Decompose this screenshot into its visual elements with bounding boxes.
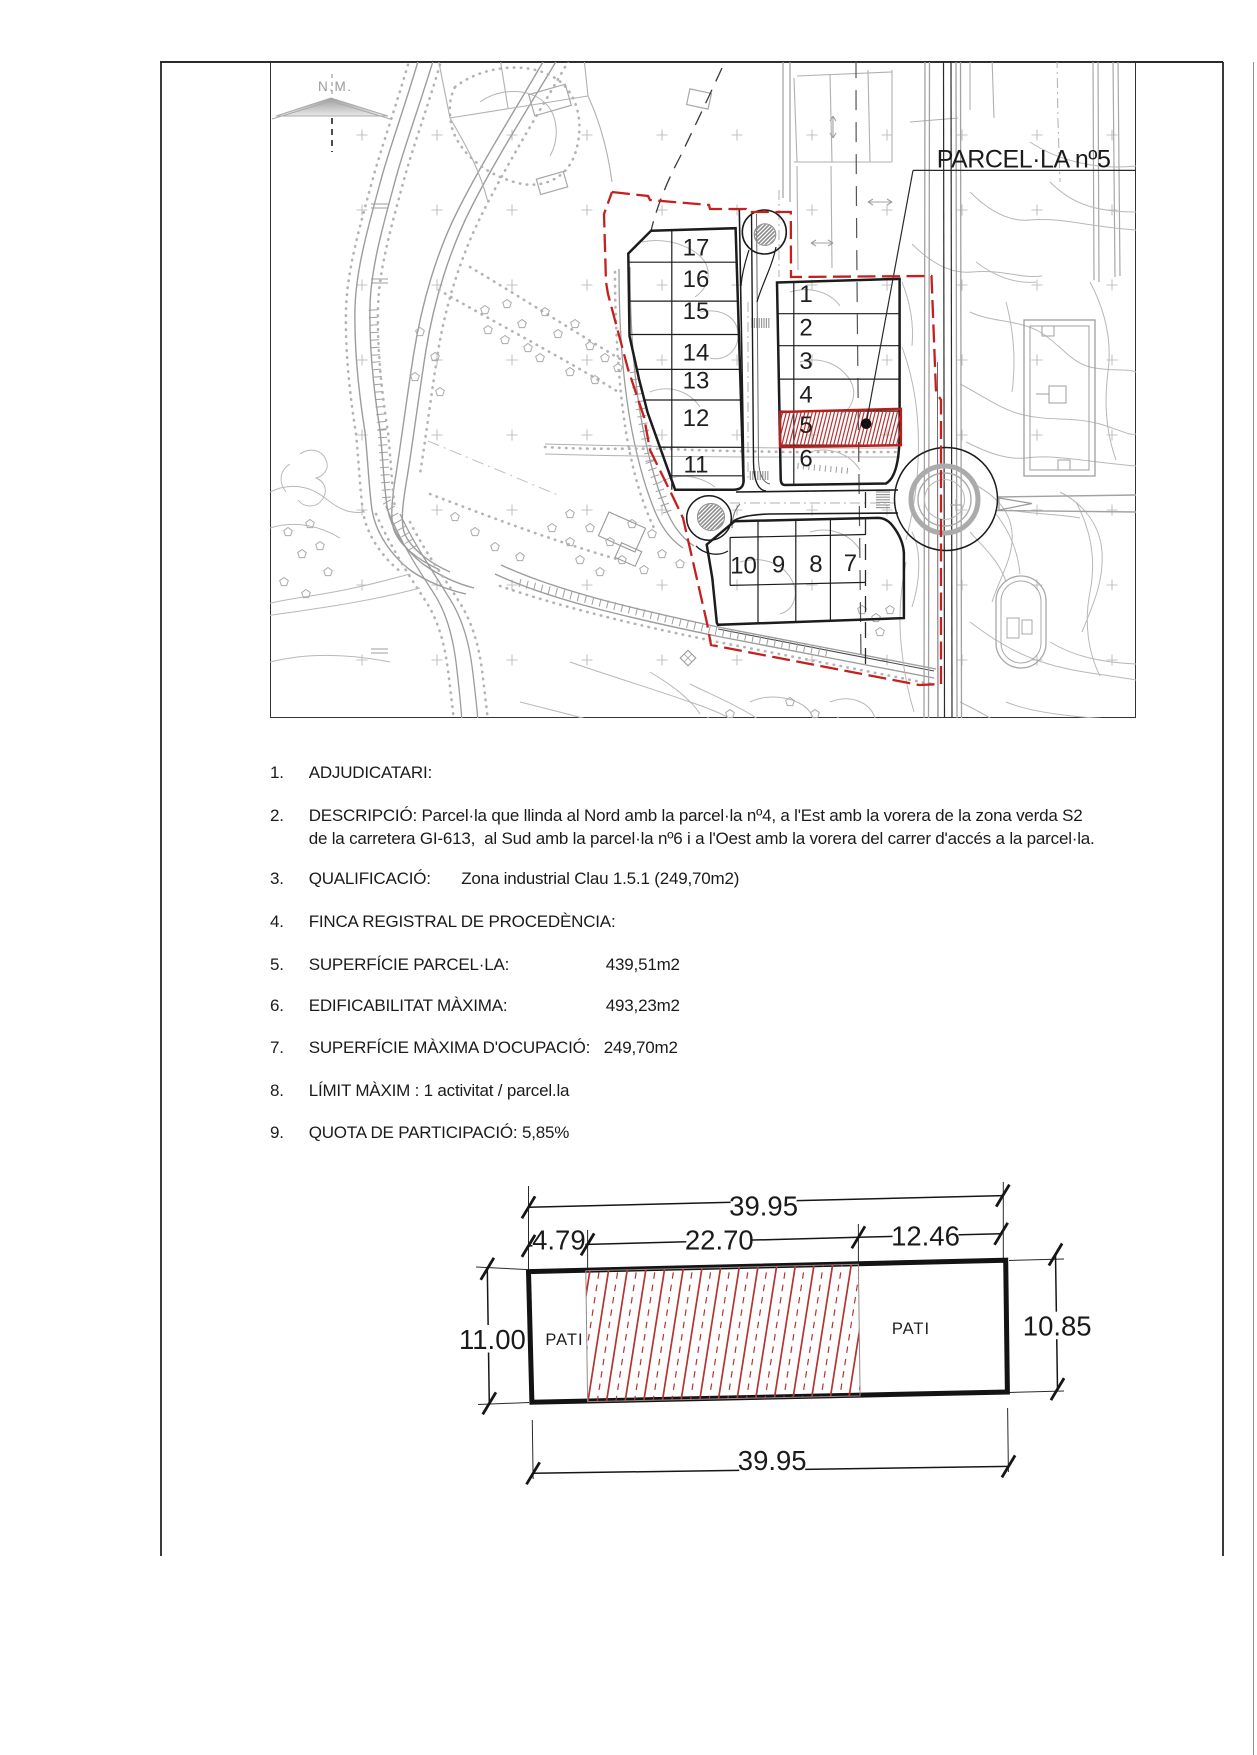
svg-text:3: 3 <box>799 348 812 375</box>
svg-text:15: 15 <box>683 298 710 325</box>
svg-text:PATI: PATI <box>892 1320 930 1338</box>
svg-text:5: 5 <box>799 412 812 439</box>
svg-text:4.79: 4.79 <box>532 1225 586 1256</box>
svg-text:10.85: 10.85 <box>1023 1311 1092 1342</box>
svg-text:11.00: 11.00 <box>459 1324 526 1355</box>
svg-text:12.46: 12.46 <box>891 1221 960 1252</box>
svg-text:4: 4 <box>799 381 812 408</box>
svg-text:PARCEL·LA nº5: PARCEL·LA nº5 <box>937 146 1111 174</box>
svg-text:9: 9 <box>772 552 785 579</box>
svg-text:7: 7 <box>844 550 857 577</box>
svg-text:39.95: 39.95 <box>738 1445 807 1476</box>
svg-text:2: 2 <box>799 315 812 342</box>
svg-text:16: 16 <box>683 266 710 293</box>
svg-text:12: 12 <box>683 405 710 432</box>
svg-text:10: 10 <box>730 553 757 580</box>
svg-text:13: 13 <box>683 368 710 395</box>
svg-text:N.M.: N.M. <box>318 79 353 94</box>
svg-text:39.95: 39.95 <box>729 1190 798 1221</box>
svg-text:6: 6 <box>799 446 812 473</box>
svg-text:8: 8 <box>809 551 822 578</box>
svg-text:PATI: PATI <box>545 1331 583 1349</box>
svg-text:1: 1 <box>799 281 812 308</box>
svg-text:11: 11 <box>684 452 709 479</box>
svg-text:17: 17 <box>683 235 710 262</box>
svg-text:14: 14 <box>683 340 710 367</box>
svg-text:22.70: 22.70 <box>685 1225 754 1256</box>
